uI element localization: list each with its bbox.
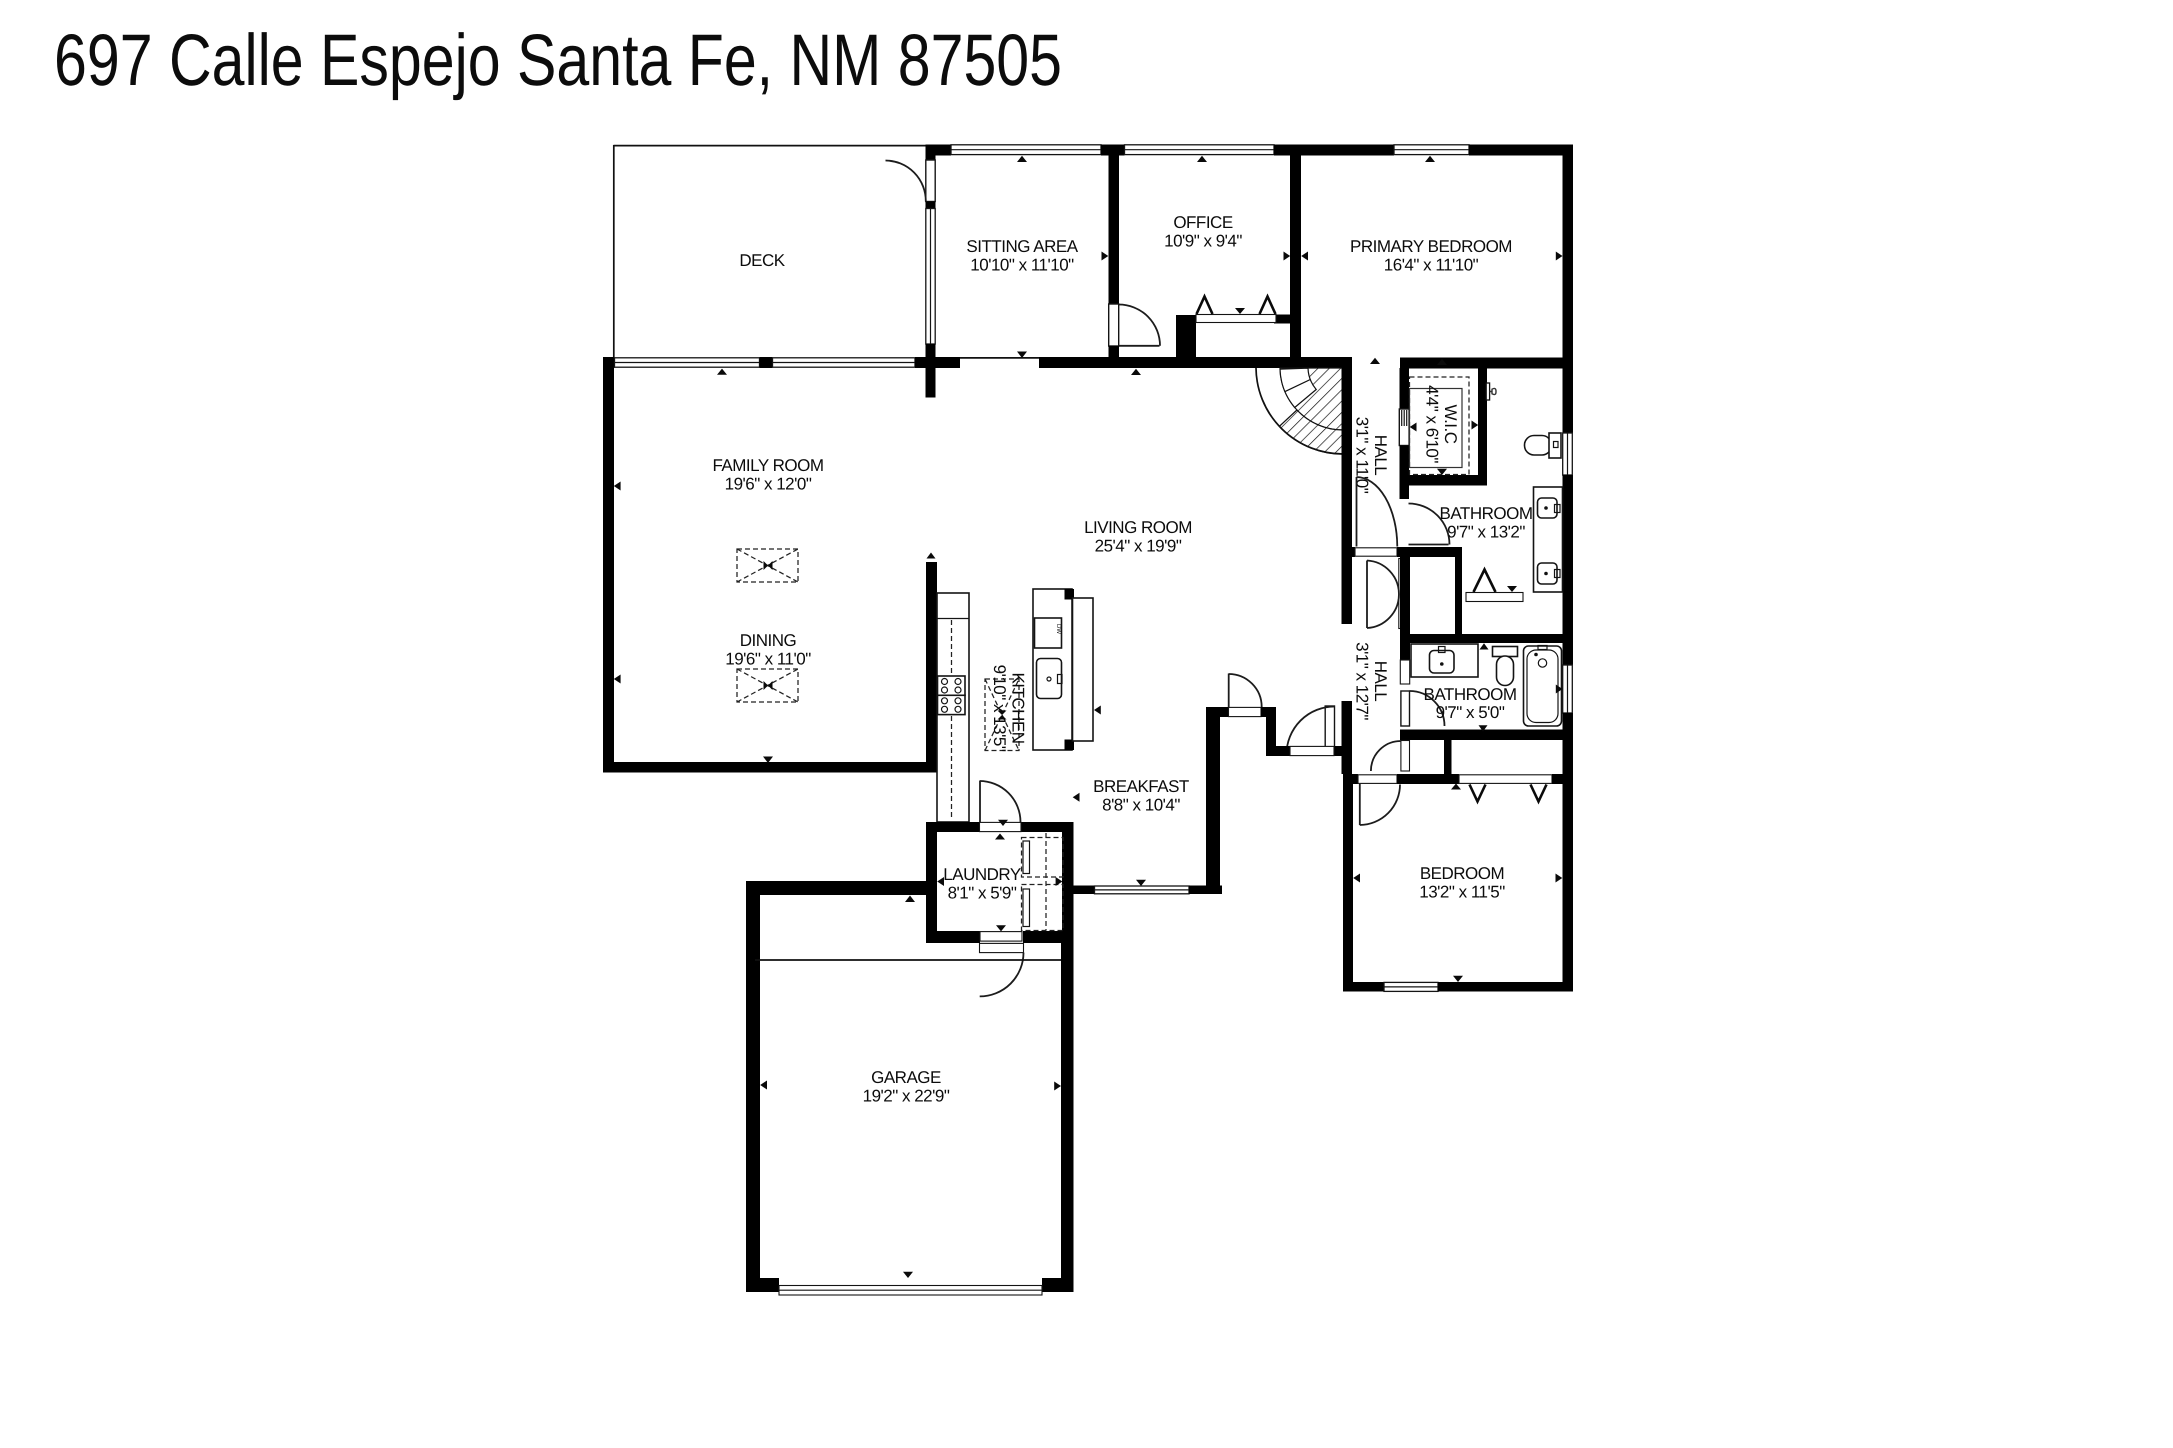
svg-text:DW: DW bbox=[1055, 624, 1062, 634]
svg-text:BREAKFAST: BREAKFAST bbox=[1093, 777, 1189, 796]
svg-text:19'2" x 22'9": 19'2" x 22'9" bbox=[863, 1087, 950, 1106]
svg-text:8'8" x 10'4": 8'8" x 10'4" bbox=[1102, 796, 1180, 815]
svg-text:SITTING AREA: SITTING AREA bbox=[966, 237, 1078, 256]
svg-text:HALL: HALL bbox=[1371, 435, 1390, 476]
svg-text:FAMILY ROOM: FAMILY ROOM bbox=[712, 456, 823, 475]
svg-text:19'6" x 12'0": 19'6" x 12'0" bbox=[725, 475, 812, 494]
svg-text:13'2" x 11'5": 13'2" x 11'5" bbox=[1419, 883, 1505, 902]
svg-text:10'9" x 9'4": 10'9" x 9'4" bbox=[1164, 232, 1242, 251]
svg-text:LAUNDRY: LAUNDRY bbox=[943, 865, 1021, 884]
svg-text:PRIMARY BEDROOM: PRIMARY BEDROOM bbox=[1350, 237, 1512, 256]
svg-text:9'7" x 13'2": 9'7" x 13'2" bbox=[1447, 523, 1525, 542]
svg-text:HALL: HALL bbox=[1371, 661, 1390, 702]
svg-text:LIVING ROOM: LIVING ROOM bbox=[1084, 518, 1192, 537]
svg-text:3'1" x 11'0": 3'1" x 11'0" bbox=[1353, 417, 1372, 494]
svg-text:BATHROOM: BATHROOM bbox=[1440, 504, 1533, 523]
svg-text:DINING: DINING bbox=[740, 631, 797, 650]
svg-text:KITCHEN: KITCHEN bbox=[1009, 672, 1028, 743]
svg-text:25'4" x 19'9": 25'4" x 19'9" bbox=[1095, 537, 1182, 556]
svg-text:BATHROOM: BATHROOM bbox=[1424, 685, 1517, 704]
svg-text:9'7" x 5'0": 9'7" x 5'0" bbox=[1436, 703, 1505, 722]
svg-text:10'10" x 11'10": 10'10" x 11'10" bbox=[970, 256, 1074, 275]
svg-text:3'1" x 12'7": 3'1" x 12'7" bbox=[1353, 642, 1372, 720]
svg-text:OFFICE: OFFICE bbox=[1173, 213, 1232, 232]
svg-text:697 Calle Espejo Santa Fe, NM: 697 Calle Espejo Santa Fe, NM 87505 bbox=[54, 20, 1062, 101]
svg-text:19'6" x 11'0": 19'6" x 11'0" bbox=[725, 650, 811, 669]
svg-text:W.I.C: W.I.C bbox=[1441, 404, 1460, 443]
svg-text:8'1" x 5'9": 8'1" x 5'9" bbox=[948, 884, 1017, 903]
svg-text:9'10" x 13'5": 9'10" x 13'5" bbox=[990, 665, 1009, 752]
svg-text:4'4" x 6'10": 4'4" x 6'10" bbox=[1423, 385, 1442, 463]
svg-text:16'4" x 11'10": 16'4" x 11'10" bbox=[1384, 256, 1479, 275]
svg-text:DECK: DECK bbox=[739, 251, 785, 270]
svg-text:GARAGE: GARAGE bbox=[871, 1068, 941, 1087]
svg-text:BEDROOM: BEDROOM bbox=[1420, 864, 1504, 883]
